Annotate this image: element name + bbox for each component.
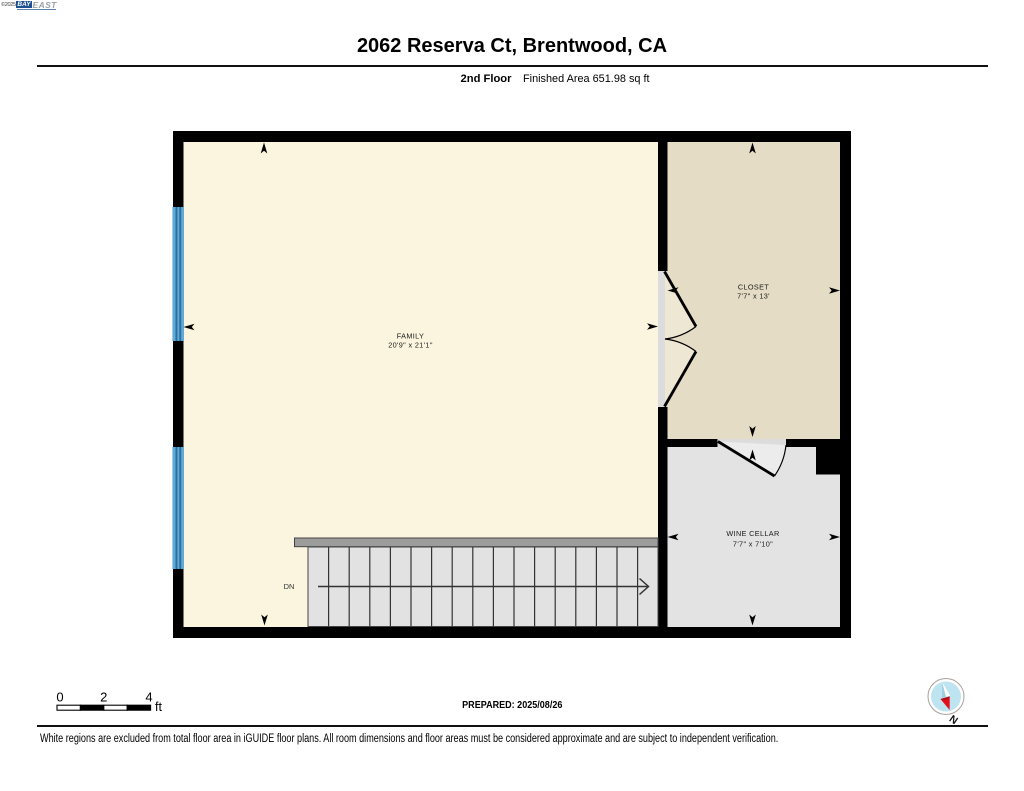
svg-text:7'7" x 13': 7'7" x 13' <box>737 292 770 301</box>
svg-text:WINE CELLAR: WINE CELLAR <box>726 529 779 538</box>
svg-text:7'7" x 7'10": 7'7" x 7'10" <box>733 540 773 549</box>
svg-text:CLOSET: CLOSET <box>738 283 769 292</box>
svg-text:20'9" x 21'1": 20'9" x 21'1" <box>388 341 433 350</box>
svg-text:FAMILY: FAMILY <box>397 332 425 341</box>
svg-text:DN: DN <box>284 582 295 591</box>
